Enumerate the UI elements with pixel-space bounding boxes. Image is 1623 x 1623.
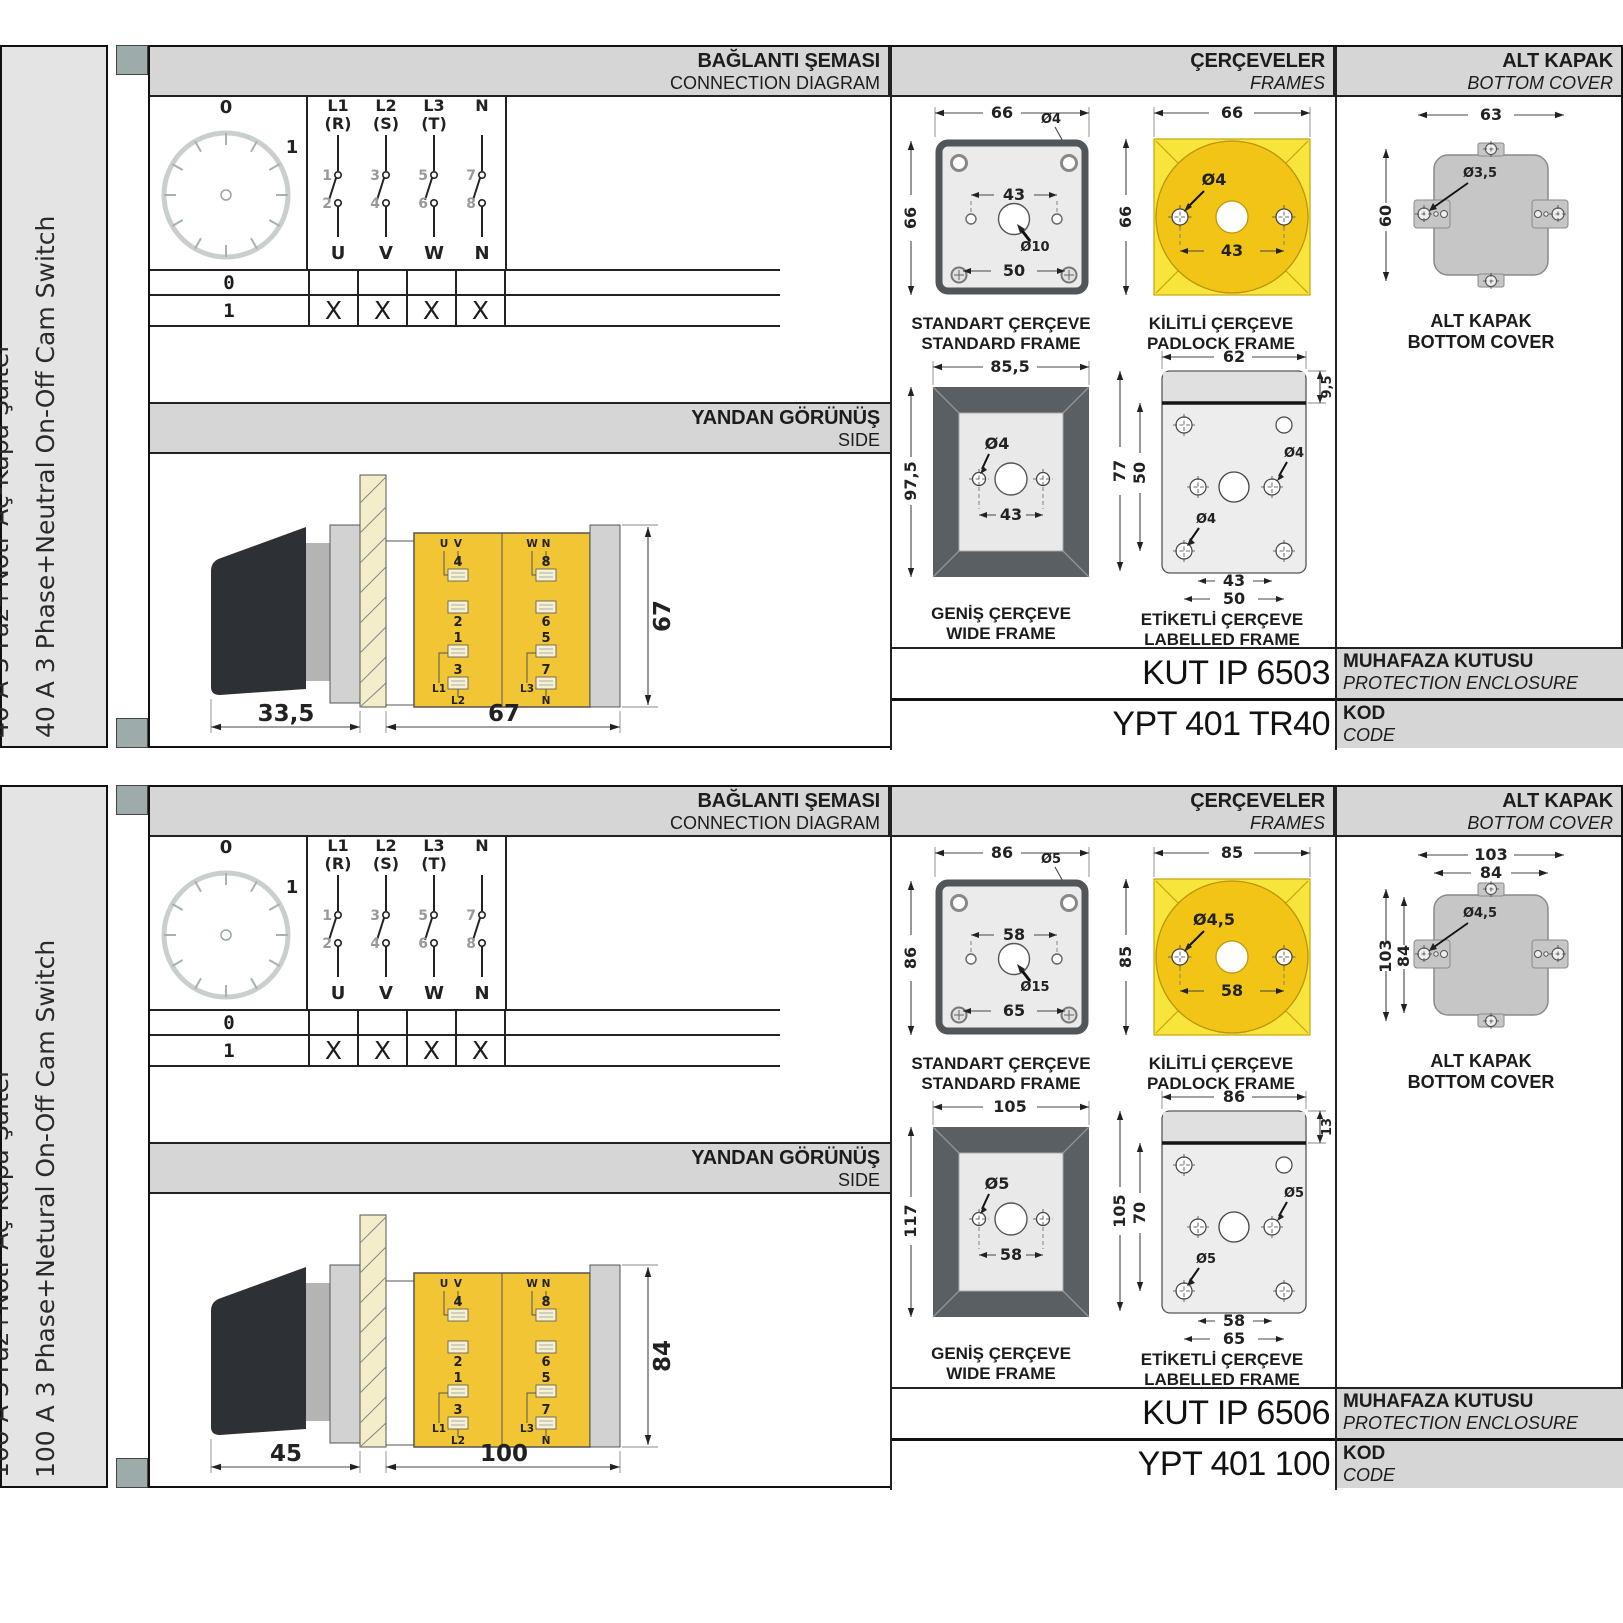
dim-height-outer: 60 xyxy=(1376,205,1395,227)
svg-text:2: 2 xyxy=(453,1355,462,1370)
labelled-frame: 62 9,5 77 50 xyxy=(1108,345,1336,649)
contact-diagram: L1 (R) L2 (S) L3 (T) N 1 2 U xyxy=(308,835,505,1007)
caption-en: WIDE FRAME xyxy=(931,1364,1071,1384)
dial-cell: 0 1 xyxy=(150,95,308,269)
caption-tr: ETİKETLİ ÇERÇEVE xyxy=(1141,1350,1303,1370)
padlock-frame: 66 66 Ø4 43 xyxy=(1112,99,1330,353)
svg-text:(S): (S) xyxy=(373,114,399,133)
corner-marker-bottom xyxy=(116,718,148,748)
dim-height: 66 xyxy=(901,207,920,229)
contact-mark: X xyxy=(406,296,455,325)
caption-tr: KİLİTLİ ÇERÇEVE xyxy=(1147,314,1295,334)
svg-text:7: 7 xyxy=(466,908,476,924)
caption-tr: STANDART ÇERÇEVE xyxy=(911,1054,1090,1074)
svg-text:N: N xyxy=(474,243,489,264)
side-label-panel: 100 A 3 Faz+Nötr Aç Kapa Şalter 100 A 3 … xyxy=(0,785,108,1488)
svg-text:W: W xyxy=(424,983,444,1004)
standard-frame: 66 Ø4 66 43 xyxy=(896,99,1106,353)
svg-text:1: 1 xyxy=(322,908,332,924)
dim-body-depth: 100 xyxy=(480,1441,528,1467)
svg-text:3: 3 xyxy=(370,168,380,184)
dim-hole-left: Ø5 xyxy=(1195,1252,1215,1267)
dim-height-outer: 103 xyxy=(1376,939,1395,972)
column-header-band: BAĞLANTI ŞEMASI CONNECTION DIAGRAM ÇERÇE… xyxy=(150,787,1621,837)
contact-mark: X xyxy=(455,1036,504,1065)
svg-text:(S): (S) xyxy=(373,854,399,873)
dim-hole-right: Ø5 xyxy=(1283,1186,1303,1201)
dial-pos-0: 0 xyxy=(220,97,233,118)
dim-hole-left: Ø4 xyxy=(1195,512,1215,527)
svg-text:W: W xyxy=(526,1278,538,1290)
caption-tr: ETİKETLİ ÇERÇEVE xyxy=(1141,610,1303,630)
contact-mark: X xyxy=(455,296,504,325)
svg-text:6: 6 xyxy=(541,1355,550,1370)
svg-text:L2: L2 xyxy=(451,1435,465,1447)
dim-width: 66 xyxy=(1220,103,1242,122)
svg-text:L2: L2 xyxy=(451,695,465,707)
caption-en: STANDARD FRAME xyxy=(911,1074,1090,1094)
svg-text:(T): (T) xyxy=(421,854,447,873)
svg-text:U: U xyxy=(440,538,449,550)
caption-tr: STANDART ÇERÇEVE xyxy=(911,314,1090,334)
dial-pos-1: 1 xyxy=(286,877,299,898)
dim-hole: Ø3,5 xyxy=(1463,166,1497,181)
labelled-frame-drawing: 86 13 105 70 xyxy=(1110,1085,1335,1347)
side-label-panel: 40 A 3 Faz+Nötr Aç-Kapa Şalter 40 A 3 Ph… xyxy=(0,45,108,748)
dim-corner-hole: Ø5 xyxy=(1040,852,1060,867)
pole-2: 3 4 V xyxy=(370,135,393,264)
pole-2: 3 4 V xyxy=(370,875,393,1004)
caption-en: STANDARD FRAME xyxy=(911,334,1090,354)
handle xyxy=(211,1267,306,1435)
table-row-0: 0 xyxy=(150,1009,780,1036)
product-code-value: YPT 401 TR40 xyxy=(892,698,1335,748)
product-name-en: 100 A 3 Phase+Netural On-Off Cam Switch xyxy=(31,940,60,1478)
contact-diagram-cell: L1 (R) L2 (S) L3 (T) N 1 2 U xyxy=(308,835,507,1009)
svg-text:3: 3 xyxy=(453,1403,462,1418)
dim-height: 105 xyxy=(1110,1194,1129,1227)
svg-text:84: 84 xyxy=(1394,945,1413,967)
padlock-frame-drawing: 85 85 Ø4,5 58 xyxy=(1114,839,1329,1051)
pole-n: 7 8 N xyxy=(466,875,489,1004)
svg-text:4: 4 xyxy=(453,555,462,570)
contact-mark: X xyxy=(308,296,357,325)
code-label: KOD CODE xyxy=(1337,698,1623,748)
svg-text:84: 84 xyxy=(1480,863,1502,882)
svg-text:L1: L1 xyxy=(327,96,348,115)
svg-text:5: 5 xyxy=(418,168,428,184)
dim-hole: Ø4 xyxy=(1201,170,1226,189)
dim-height: 117 xyxy=(901,1204,920,1237)
wide-frame: 105 117 Ø5 58 xyxy=(896,1093,1106,1383)
svg-text:N: N xyxy=(475,96,488,115)
svg-text:3: 3 xyxy=(453,663,462,678)
bottom-cover: 63 60 xyxy=(1352,103,1610,352)
svg-text:2: 2 xyxy=(322,196,332,212)
svg-text:N: N xyxy=(475,836,488,855)
row-label: 0 xyxy=(150,271,308,294)
dial-pos-0: 0 xyxy=(220,837,233,858)
table-row-1: 1 X X X X xyxy=(150,296,780,327)
dim-height-inner-group: 84 xyxy=(1394,897,1413,1013)
table-row-1: 1 X X X X xyxy=(150,1036,780,1067)
dim-hole-span: 43 xyxy=(999,505,1021,524)
dim-width: 62 xyxy=(1222,347,1244,366)
svg-text:1: 1 xyxy=(453,631,462,646)
header-connection-diagram: BAĞLANTI ŞEMASI CONNECTION DIAGRAM xyxy=(150,47,890,95)
dim-hole-right: Ø4 xyxy=(1283,446,1303,461)
padlock-frame-drawing: 66 66 Ø4 43 xyxy=(1114,99,1329,311)
svg-text:5: 5 xyxy=(541,631,550,646)
dim-hole: Ø4,5 xyxy=(1193,910,1235,929)
mounting-panel xyxy=(360,475,386,707)
svg-text:8: 8 xyxy=(541,1295,550,1310)
svg-text:1: 1 xyxy=(453,1371,462,1386)
svg-text:6: 6 xyxy=(418,196,428,212)
enclosure-code-value: KUT IP 6503 xyxy=(892,647,1335,698)
bottom-cover-drawing: 103 84 103 84 xyxy=(1356,843,1606,1048)
side-view-drawing: U V W N 4 2 1 3 8 6 5 7 L1 L2 L3 N 67 33… xyxy=(156,449,696,739)
dim-center-hole: Ø10 xyxy=(1020,240,1049,255)
dim-hole: Ø4 xyxy=(984,434,1009,453)
handle xyxy=(211,527,306,695)
dim-inner-height: 50 xyxy=(1130,462,1149,484)
product-section: 100 A 3 Faz+Nötr Aç Kapa Şalter 100 A 3 … xyxy=(0,785,1623,1488)
svg-text:7: 7 xyxy=(466,168,476,184)
switching-table: 0 1 X X X X xyxy=(150,269,780,327)
switch-position-dial: 0 1 xyxy=(150,835,306,1007)
svg-text:V: V xyxy=(379,243,393,264)
column-header-band: BAĞLANTI ŞEMASI CONNECTION DIAGRAM ÇERÇE… xyxy=(150,47,1621,97)
dim-bottom-span: 50 xyxy=(1002,261,1024,280)
column-divider xyxy=(890,787,892,1490)
bottom-cover-drawing: 63 60 xyxy=(1356,103,1606,308)
dim-handle-depth: 45 xyxy=(270,1441,302,1467)
column-divider xyxy=(890,47,892,750)
dim-hole: Ø5 xyxy=(984,1174,1009,1193)
header-bottom-cover: ALT KAPAK BOTTOM COVER xyxy=(1335,787,1621,835)
table-row-0: 0 xyxy=(150,269,780,296)
dim-hole-span: 58 xyxy=(1222,1311,1244,1330)
dim-hole-span: 58 xyxy=(999,1245,1021,1264)
svg-text:(R): (R) xyxy=(325,114,352,133)
svg-text:8: 8 xyxy=(541,555,550,570)
side-view-header: YANDAN GÖRÜNÜŞ SIDE xyxy=(150,402,890,454)
dim-width: 66 xyxy=(990,103,1012,122)
svg-text:U: U xyxy=(440,1278,449,1290)
caption-tr: GENİŞ ÇERÇEVE xyxy=(931,604,1071,624)
svg-text:8: 8 xyxy=(466,936,476,952)
svg-text:N: N xyxy=(542,538,551,550)
header-frames: ÇERÇEVELER FRAMES xyxy=(890,787,1335,835)
product-section: 40 A 3 Faz+Nötr Aç-Kapa Şalter 40 A 3 Ph… xyxy=(0,45,1623,748)
svg-text:L1: L1 xyxy=(327,836,348,855)
svg-text:8: 8 xyxy=(466,196,476,212)
svg-text:6: 6 xyxy=(418,936,428,952)
enclosure-code-value: KUT IP 6506 xyxy=(892,1387,1335,1438)
padlock-frame: 85 85 Ø4,5 58 xyxy=(1112,839,1330,1093)
caption-en: BOTTOM COVER xyxy=(1408,332,1555,353)
dim-hole-span: 43 xyxy=(1220,241,1242,260)
wide-frame-drawing: 85,5 97,5 Ø4 4 xyxy=(899,353,1104,601)
side-view-header: YANDAN GÖRÜNÜŞ SIDE xyxy=(150,1142,890,1194)
header-frames: ÇERÇEVELER FRAMES xyxy=(890,47,1335,95)
dim-handle-depth: 33,5 xyxy=(258,701,315,727)
svg-text:L2: L2 xyxy=(375,836,396,855)
labelled-frame-drawing: 62 9,5 77 50 xyxy=(1110,345,1335,607)
caption-en: BOTTOM COVER xyxy=(1408,1072,1555,1093)
dim-hole: Ø4,5 xyxy=(1463,906,1497,921)
product-name-tr: 40 A 3 Faz+Nötr Aç-Kapa Şalter xyxy=(0,342,14,738)
standard-frame-drawing: 66 Ø4 66 43 xyxy=(899,99,1104,311)
svg-text:W: W xyxy=(526,538,538,550)
mounting-panel xyxy=(360,1215,386,1447)
bottom-cover: 103 84 103 84 xyxy=(1352,843,1610,1092)
enclosure-label: MUHAFAZA KUTUSU PROTECTION ENCLOSURE xyxy=(1337,647,1623,698)
svg-text:N: N xyxy=(542,695,551,707)
row-label: 1 xyxy=(150,296,308,325)
dim-bottom-span: 50 xyxy=(1222,589,1244,607)
standard-frame: 86 Ø5 86 58 xyxy=(896,839,1106,1093)
contact-mark: X xyxy=(406,1036,455,1065)
side-view-drawing: U V W N 4 2 1 3 8 6 5 7 L1 L2 L3 N 84 45 xyxy=(156,1189,696,1479)
labelled-frame: 86 13 105 70 xyxy=(1108,1085,1336,1389)
product-name-tr: 100 A 3 Faz+Nötr Aç Kapa Şalter xyxy=(0,1068,14,1478)
svg-text:4: 4 xyxy=(453,1295,462,1310)
svg-text:L3: L3 xyxy=(520,683,534,695)
caption-en: WIDE FRAME xyxy=(931,624,1071,644)
product-name-en: 40 A 3 Phase+Neutral On-Off Cam Switch xyxy=(31,216,60,738)
svg-text:L3: L3 xyxy=(423,96,444,115)
svg-text:1: 1 xyxy=(322,168,332,184)
dim-height: 86 xyxy=(901,947,920,969)
svg-text:V: V xyxy=(454,538,463,550)
dim-width-inner-group: 84 xyxy=(1434,863,1548,882)
svg-text:4: 4 xyxy=(370,196,380,212)
dim-width: 85 xyxy=(1220,843,1242,862)
pole-3: 5 6 W xyxy=(418,135,444,264)
dim-width-outer: 103 xyxy=(1474,845,1507,864)
dim-width: 86 xyxy=(990,843,1012,862)
svg-text:7: 7 xyxy=(541,663,550,678)
caption-tr: GENİŞ ÇERÇEVE xyxy=(931,1344,1071,1364)
dim-bottom-span: 65 xyxy=(1002,1001,1024,1020)
wide-frame: 85,5 97,5 Ø4 4 xyxy=(896,353,1106,643)
svg-text:N: N xyxy=(542,1278,551,1290)
dim-strip: 9,5 xyxy=(1320,375,1335,398)
svg-text:V: V xyxy=(454,1278,463,1290)
svg-text:6: 6 xyxy=(541,615,550,630)
svg-text:(T): (T) xyxy=(421,114,447,133)
dim-hole-span: 43 xyxy=(1222,571,1244,590)
standard-frame-drawing: 86 Ø5 86 58 xyxy=(899,839,1104,1051)
header-bottom-cover: ALT KAPAK BOTTOM COVER xyxy=(1335,47,1621,95)
datasheet-panel: BAĞLANTI ŞEMASI CONNECTION DIAGRAM ÇERÇE… xyxy=(148,45,1623,748)
dim-inner-height: 70 xyxy=(1130,1202,1149,1224)
dim-width: 86 xyxy=(1222,1087,1244,1106)
svg-text:2: 2 xyxy=(322,936,332,952)
corner-marker-top xyxy=(116,45,148,75)
contact-diagram: L1 (R) L2 (S) L3 (T) N 1 2 U xyxy=(308,95,505,267)
svg-text:5: 5 xyxy=(418,908,428,924)
wide-frame-drawing: 105 117 Ø5 58 xyxy=(899,1093,1104,1341)
contact-mark: X xyxy=(308,1036,357,1065)
svg-text:L3: L3 xyxy=(423,836,444,855)
svg-text:2: 2 xyxy=(453,615,462,630)
svg-text:(R): (R) xyxy=(325,854,352,873)
caption-tr: KİLİTLİ ÇERÇEVE xyxy=(1147,1054,1295,1074)
svg-text:L1: L1 xyxy=(432,683,446,695)
dim-bottom-span: 65 xyxy=(1222,1329,1244,1347)
pole-1: 1 2 U xyxy=(322,135,345,264)
svg-text:3: 3 xyxy=(370,908,380,924)
dim-width-outer: 63 xyxy=(1480,105,1502,124)
caption-tr: ALT KAPAK xyxy=(1408,1051,1555,1072)
enclosure-label: MUHAFAZA KUTUSU PROTECTION ENCLOSURE xyxy=(1337,1387,1623,1438)
dim-width: 105 xyxy=(993,1097,1026,1116)
svg-text:U: U xyxy=(331,243,346,264)
svg-text:L2: L2 xyxy=(375,96,396,115)
dim-strip: 13 xyxy=(1320,1118,1335,1136)
row-label: 1 xyxy=(150,1036,308,1065)
svg-text:L3: L3 xyxy=(520,1423,534,1435)
code-label: KOD CODE xyxy=(1337,1438,1623,1488)
dial-cell: 0 1 xyxy=(150,835,308,1009)
svg-text:4: 4 xyxy=(370,936,380,952)
header-connection-diagram: BAĞLANTI ŞEMASI CONNECTION DIAGRAM xyxy=(150,787,890,835)
dim-hole-span: 43 xyxy=(1002,185,1024,204)
pole-3: 5 6 W xyxy=(418,875,444,1004)
svg-text:U: U xyxy=(331,983,346,1004)
dim-center-hole: Ø15 xyxy=(1020,980,1049,995)
dim-height: 66 xyxy=(1116,206,1135,228)
svg-text:7: 7 xyxy=(541,1403,550,1418)
product-code-value: YPT 401 100 xyxy=(892,1438,1335,1488)
switch-position-dial: 0 1 xyxy=(150,95,306,267)
svg-text:N: N xyxy=(542,1435,551,1447)
row-label: 0 xyxy=(150,1011,308,1034)
dim-hole-span: 58 xyxy=(1002,925,1024,944)
svg-text:N: N xyxy=(474,983,489,1004)
contact-mark: X xyxy=(357,1036,406,1065)
svg-text:L1: L1 xyxy=(432,1423,446,1435)
dim-height: 84 xyxy=(650,1340,676,1372)
contact-diagram-cell: L1 (R) L2 (S) L3 (T) N 1 2 U xyxy=(308,95,507,269)
dim-body-depth: 67 xyxy=(488,701,520,727)
dim-height: 77 xyxy=(1110,460,1129,482)
svg-text:V: V xyxy=(379,983,393,1004)
caption-tr: ALT KAPAK xyxy=(1408,311,1555,332)
dim-height: 67 xyxy=(650,600,676,632)
corner-marker-bottom xyxy=(116,1458,148,1488)
dial-pos-1: 1 xyxy=(286,137,299,158)
dim-height: 85 xyxy=(1116,946,1135,968)
switching-table: 0 1 X X X X xyxy=(150,1009,780,1067)
dim-width: 85,5 xyxy=(990,357,1029,376)
svg-text:W: W xyxy=(424,243,444,264)
pole-1: 1 2 U xyxy=(322,875,345,1004)
pole-n: 7 8 N xyxy=(466,135,489,264)
dim-height: 97,5 xyxy=(901,461,920,500)
contact-mark: X xyxy=(357,296,406,325)
datasheet-panel: BAĞLANTI ŞEMASI CONNECTION DIAGRAM ÇERÇE… xyxy=(148,785,1623,1488)
corner-marker-top xyxy=(116,785,148,815)
svg-text:5: 5 xyxy=(541,1371,550,1386)
dim-corner-hole: Ø4 xyxy=(1040,112,1060,127)
dim-hole-span: 58 xyxy=(1220,981,1242,1000)
